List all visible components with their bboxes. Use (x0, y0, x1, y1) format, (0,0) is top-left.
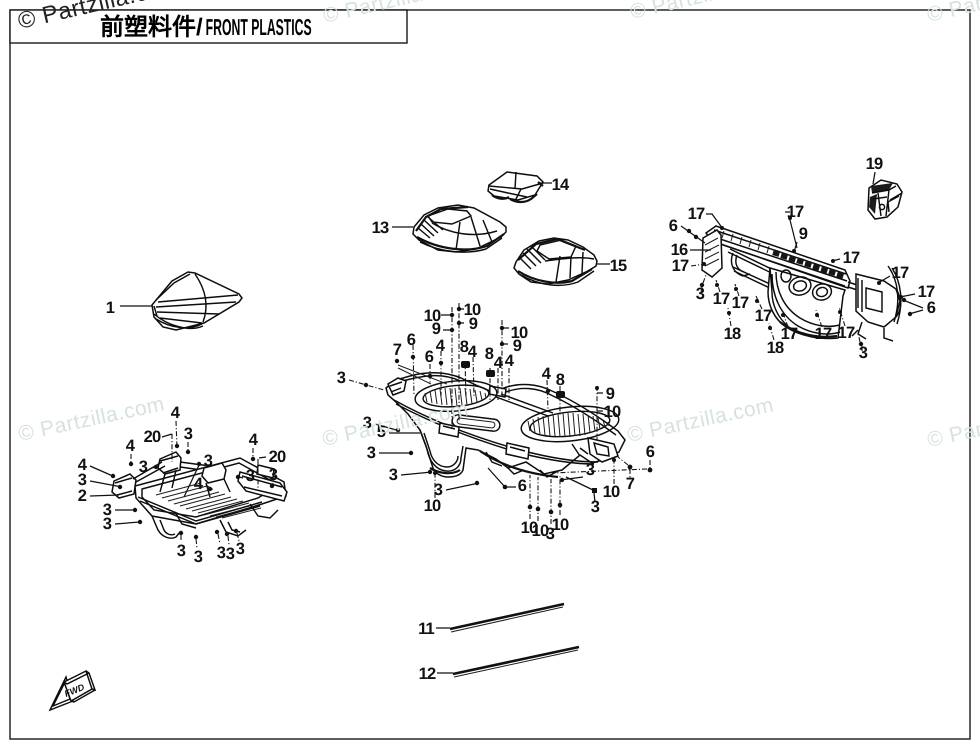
svg-text:3: 3 (269, 466, 278, 484)
svg-text:18: 18 (767, 339, 784, 357)
svg-text:10: 10 (603, 483, 620, 501)
svg-text:3: 3 (226, 545, 235, 563)
svg-text:9: 9 (513, 337, 522, 355)
svg-text:3: 3 (367, 444, 376, 462)
svg-text:15: 15 (610, 257, 627, 275)
svg-text:8: 8 (485, 345, 494, 363)
svg-text:14: 14 (552, 176, 570, 194)
svg-text:3: 3 (696, 285, 705, 303)
svg-text:20: 20 (144, 428, 161, 446)
svg-text:3: 3 (139, 458, 148, 476)
svg-text:13: 13 (372, 219, 389, 237)
svg-text:17: 17 (755, 307, 772, 325)
svg-text:3: 3 (586, 461, 595, 479)
svg-text:6: 6 (646, 443, 655, 461)
svg-text:6: 6 (669, 217, 678, 235)
svg-text:17: 17 (843, 249, 860, 267)
svg-text:3: 3 (177, 542, 186, 560)
svg-text:3: 3 (859, 344, 868, 362)
svg-text:1: 1 (106, 299, 115, 317)
svg-text:3: 3 (103, 515, 112, 533)
svg-text:3: 3 (194, 548, 203, 566)
svg-text:17: 17 (838, 324, 855, 342)
svg-text:6: 6 (927, 299, 936, 317)
svg-text:11: 11 (418, 620, 434, 638)
svg-text:3: 3 (236, 540, 245, 558)
svg-text:12: 12 (419, 665, 436, 683)
svg-text:3: 3 (184, 425, 193, 443)
svg-text:3: 3 (217, 544, 226, 562)
svg-text:17: 17 (892, 264, 909, 282)
svg-text:19: 19 (866, 155, 883, 173)
svg-text:7: 7 (626, 475, 635, 493)
svg-text:6: 6 (407, 331, 416, 349)
svg-text:10: 10 (604, 403, 621, 421)
svg-text:17: 17 (672, 257, 689, 275)
svg-text:6: 6 (425, 348, 434, 366)
svg-text:9: 9 (469, 315, 478, 333)
svg-text:3: 3 (337, 369, 346, 387)
svg-text:17: 17 (732, 294, 749, 312)
svg-text:17: 17 (688, 205, 705, 223)
svg-text:9: 9 (606, 385, 615, 403)
svg-text:7: 7 (393, 341, 402, 359)
svg-text:2: 2 (78, 487, 87, 505)
svg-text:3: 3 (246, 467, 255, 485)
svg-text:3: 3 (389, 466, 398, 484)
svg-text:17: 17 (815, 325, 832, 343)
svg-text:9: 9 (432, 320, 441, 338)
svg-text:10: 10 (552, 516, 569, 534)
svg-text:20: 20 (269, 448, 286, 466)
svg-text:6: 6 (518, 477, 527, 495)
svg-text:前塑料件/FRONT PLASTICS: 前塑料件/FRONT PLASTICS (100, 14, 312, 41)
svg-text:9: 9 (799, 225, 808, 243)
svg-text:3: 3 (204, 452, 213, 470)
svg-text:17: 17 (713, 290, 730, 308)
svg-text:10: 10 (424, 497, 441, 515)
svg-text:18: 18 (724, 325, 741, 343)
